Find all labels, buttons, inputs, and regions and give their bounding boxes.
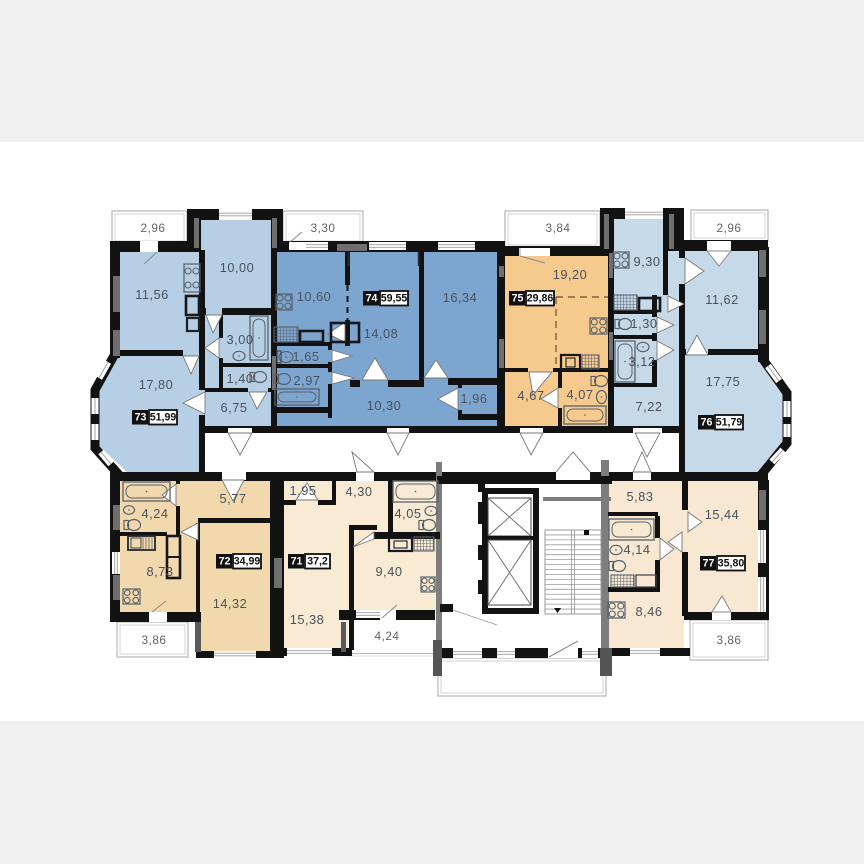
svg-text:9,40: 9,40 (376, 564, 403, 579)
svg-text:17,80: 17,80 (139, 377, 174, 392)
svg-text:17,75: 17,75 (706, 374, 741, 389)
svg-text:1,65: 1,65 (293, 349, 320, 364)
svg-text:35,80: 35,80 (718, 558, 745, 570)
svg-text:14,32: 14,32 (213, 596, 248, 611)
svg-text:74: 74 (366, 293, 378, 305)
svg-text:10,00: 10,00 (220, 260, 255, 275)
svg-text:1,95: 1,95 (290, 483, 317, 498)
svg-text:10,30: 10,30 (367, 398, 402, 413)
svg-text:8,46: 8,46 (636, 604, 663, 619)
svg-text:29,86: 29,86 (527, 293, 554, 305)
svg-text:4,05: 4,05 (395, 506, 422, 521)
svg-text:5,83: 5,83 (627, 489, 654, 504)
svg-text:3,86: 3,86 (142, 633, 167, 647)
svg-text:3,84: 3,84 (546, 221, 571, 235)
svg-text:4,24: 4,24 (142, 506, 169, 521)
svg-text:71: 71 (291, 556, 303, 568)
svg-text:72: 72 (219, 556, 231, 568)
svg-text:76: 76 (701, 417, 713, 429)
svg-text:16,34: 16,34 (443, 290, 478, 305)
svg-text:4,24: 4,24 (375, 629, 400, 643)
svg-text:2,97: 2,97 (294, 373, 321, 388)
svg-text:37,2: 37,2 (307, 556, 328, 568)
svg-text:4,07: 4,07 (567, 387, 594, 402)
svg-text:1,40: 1,40 (227, 371, 254, 386)
svg-text:11,56: 11,56 (135, 287, 169, 302)
svg-text:14,08: 14,08 (364, 326, 399, 341)
svg-text:59,55: 59,55 (381, 293, 408, 305)
svg-text:3,30: 3,30 (311, 221, 336, 235)
svg-text:11,62: 11,62 (705, 292, 739, 307)
svg-text:51,99: 51,99 (150, 412, 177, 424)
svg-text:6,75: 6,75 (221, 400, 248, 415)
svg-text:3,00: 3,00 (227, 332, 254, 347)
svg-text:10,60: 10,60 (297, 289, 332, 304)
svg-text:8,73: 8,73 (147, 564, 174, 579)
svg-text:15,44: 15,44 (705, 507, 740, 522)
svg-text:4,67: 4,67 (518, 388, 545, 403)
svg-text:5,77: 5,77 (220, 491, 247, 506)
svg-text:34,99: 34,99 (234, 556, 261, 568)
svg-text:75: 75 (512, 293, 524, 305)
svg-text:15,38: 15,38 (290, 612, 325, 627)
svg-text:3,86: 3,86 (717, 633, 742, 647)
svg-text:3,12: 3,12 (629, 354, 656, 369)
svg-text:4,14: 4,14 (624, 542, 651, 557)
svg-text:2,96: 2,96 (141, 221, 166, 235)
svg-text:1,96: 1,96 (461, 391, 488, 406)
svg-text:1,30: 1,30 (631, 316, 658, 331)
svg-text:9,30: 9,30 (634, 254, 661, 269)
svg-text:19,20: 19,20 (553, 267, 588, 282)
svg-text:4,30: 4,30 (346, 484, 373, 499)
svg-text:51,79: 51,79 (716, 417, 743, 429)
svg-text:73: 73 (135, 412, 147, 424)
svg-text:2,96: 2,96 (717, 221, 742, 235)
svg-text:77: 77 (703, 558, 715, 570)
svg-text:7,22: 7,22 (636, 399, 663, 414)
